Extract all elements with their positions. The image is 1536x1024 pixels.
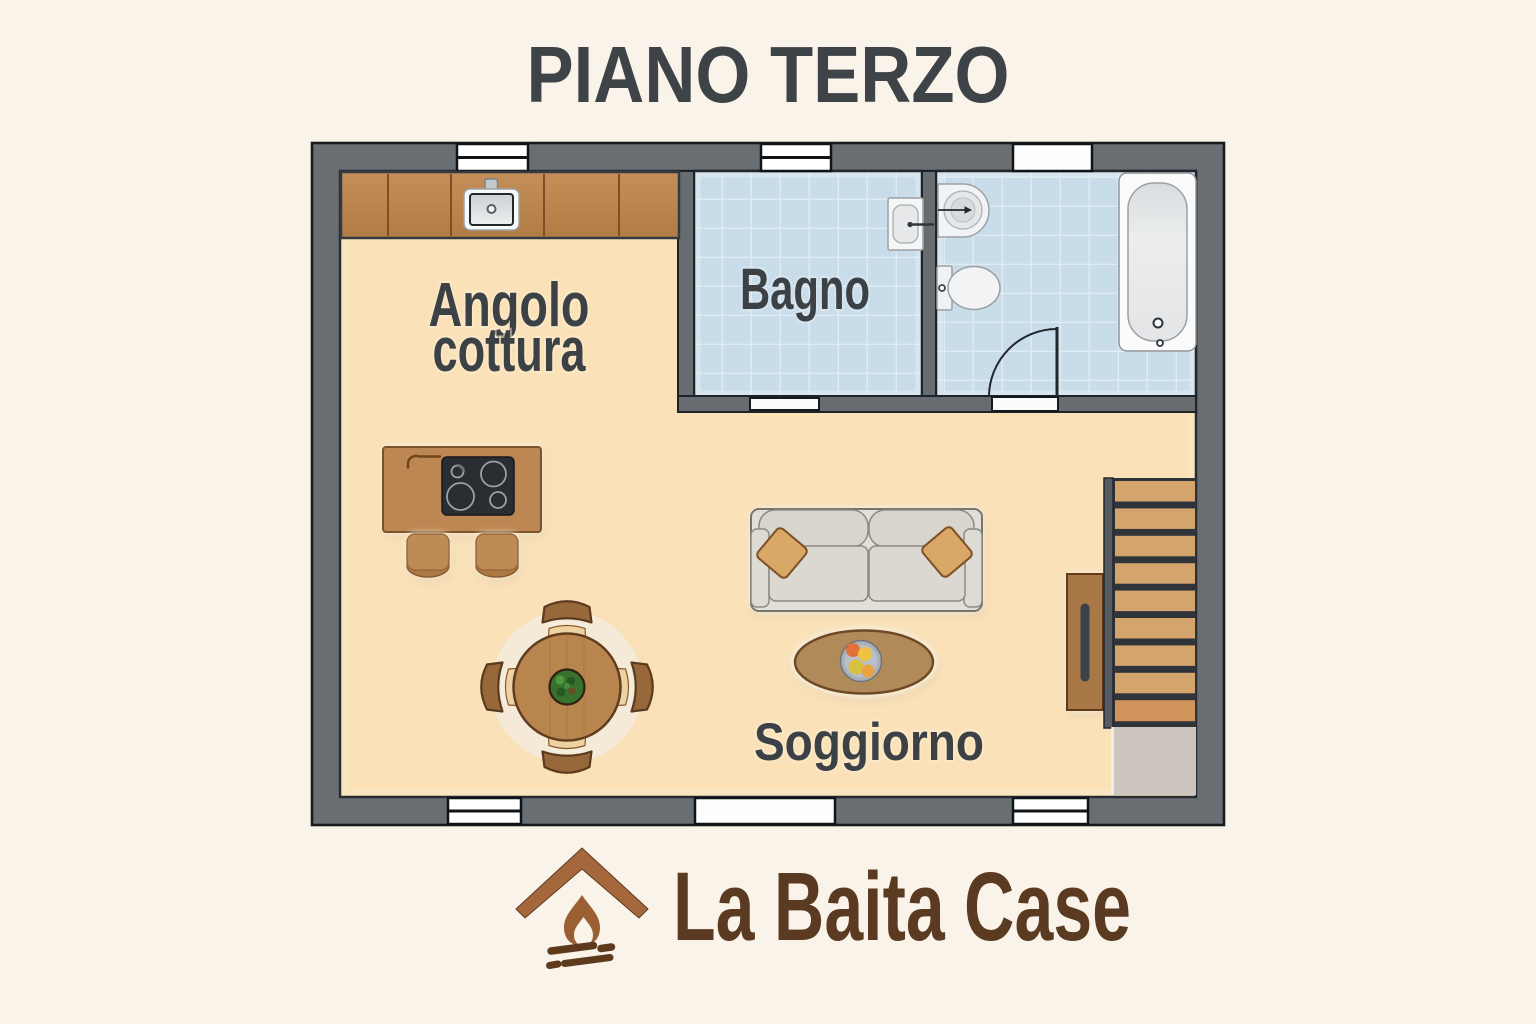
svg-text:PIANO TERZO: PIANO TERZO <box>527 30 1010 119</box>
svg-text:Soggiorno: Soggiorno <box>754 713 984 772</box>
svg-text:La Baita Case: La Baita Case <box>673 852 1131 961</box>
svg-text:cottura: cottura <box>433 316 586 385</box>
svg-text:Bagno: Bagno <box>740 257 870 322</box>
